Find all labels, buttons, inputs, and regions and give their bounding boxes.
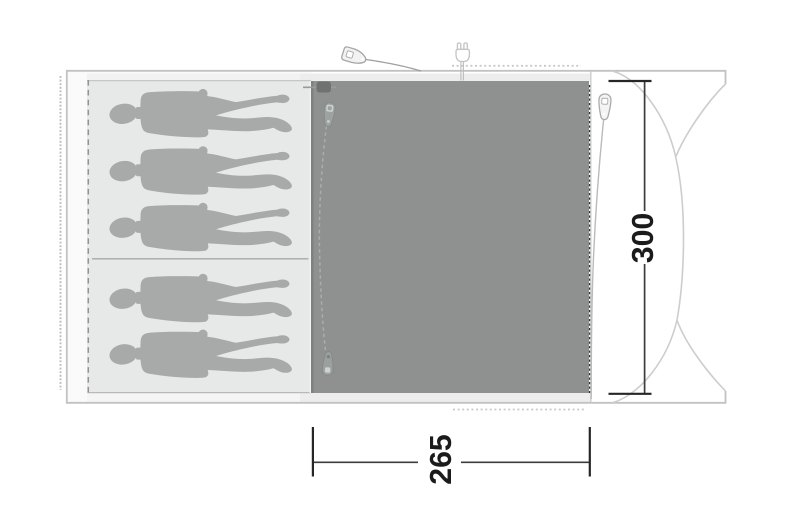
svg-text:300: 300	[627, 213, 660, 264]
svg-text:265: 265	[425, 434, 458, 485]
